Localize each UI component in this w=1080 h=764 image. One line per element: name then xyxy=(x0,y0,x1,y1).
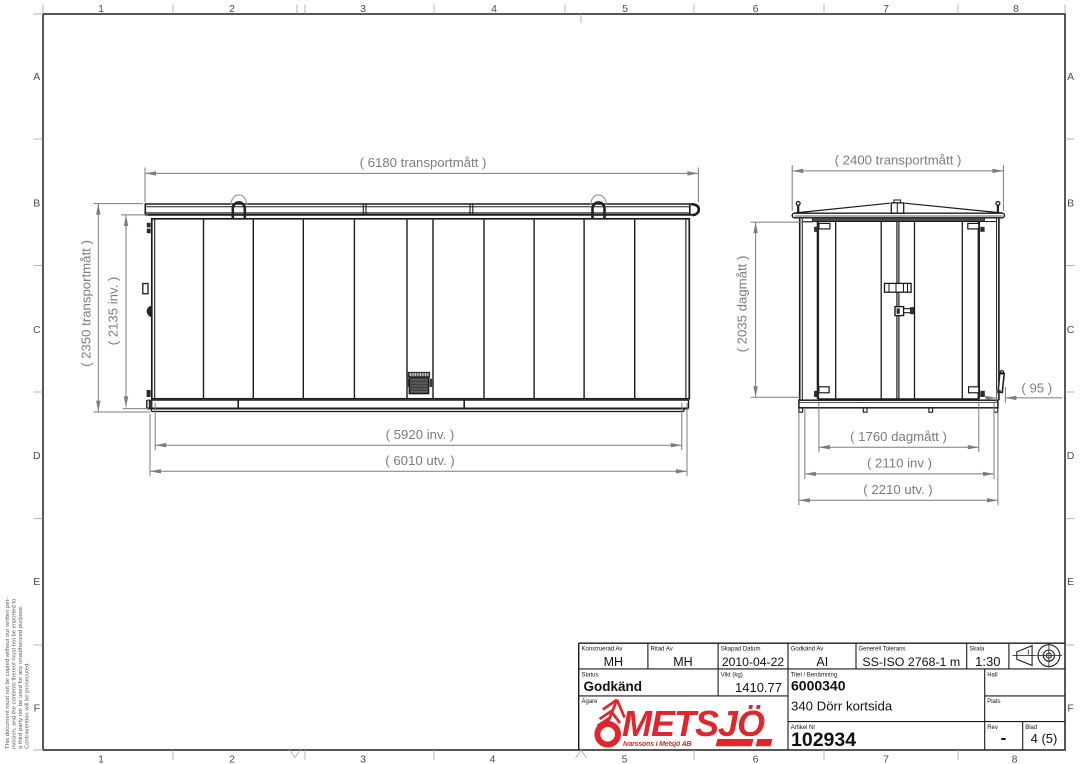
svg-text:Ivarssons i Metsjö AB: Ivarssons i Metsjö AB xyxy=(623,741,691,748)
svg-text:6: 6 xyxy=(753,3,759,15)
svg-text:This document must not be copi: This document must not be copied without… xyxy=(5,597,11,749)
svg-text:Ägare: Ägare xyxy=(582,698,599,705)
svg-text:Vikt (kg): Vikt (kg) xyxy=(721,672,743,678)
svg-text:E: E xyxy=(1067,576,1074,588)
svg-text:MH: MH xyxy=(673,655,692,669)
svg-text:METSJÖ: METSJÖ xyxy=(622,703,765,744)
svg-text:4: 4 xyxy=(491,3,497,15)
svg-text:4 (5): 4 (5) xyxy=(1031,731,1058,746)
svg-text:Generell Tolerans: Generell Tolerans xyxy=(859,647,906,653)
svg-text:6000340: 6000340 xyxy=(791,678,846,694)
svg-text:( 2400 transportmått ): ( 2400 transportmått ) xyxy=(835,153,962,168)
svg-text:Godkänd: Godkänd xyxy=(584,679,643,694)
svg-text:E: E xyxy=(33,576,40,588)
svg-text:102934: 102934 xyxy=(791,729,856,751)
svg-text:( 2350 transportmått ): ( 2350 transportmått ) xyxy=(79,240,94,367)
svg-text:( 2035 dagmått ): ( 2035 dagmått ) xyxy=(734,256,749,353)
svg-text:C: C xyxy=(33,324,41,336)
svg-text:F: F xyxy=(34,703,40,715)
svg-text:SS-ISO 2768-1 m: SS-ISO 2768-1 m xyxy=(862,655,960,669)
svg-text:B: B xyxy=(33,197,40,209)
svg-text:( 1760 dagmått ): ( 1760 dagmått ) xyxy=(850,429,947,444)
svg-text:Contravention will be prosecut: Contravention will be prosecuted. xyxy=(25,662,31,749)
svg-text:Rev: Rev xyxy=(987,725,998,731)
svg-text:8: 8 xyxy=(1012,753,1018,764)
svg-text:mission, and the contents ther: mission, and the contents thereof must n… xyxy=(12,598,18,749)
svg-text:( 2110 inv ): ( 2110 inv ) xyxy=(867,456,932,471)
svg-text:4: 4 xyxy=(490,753,496,764)
svg-text:5: 5 xyxy=(622,3,628,15)
svg-text:( 5920 inv. ): ( 5920 inv. ) xyxy=(386,427,455,442)
svg-text:B: B xyxy=(1067,197,1074,209)
svg-text:( 2135 inv. ): ( 2135 inv. ) xyxy=(106,277,121,346)
svg-text:3: 3 xyxy=(360,3,366,15)
svg-text:2: 2 xyxy=(229,3,235,15)
svg-text:2: 2 xyxy=(229,753,235,764)
svg-text:C: C xyxy=(1067,324,1075,336)
svg-text:( 6010 utv. ): ( 6010 utv. ) xyxy=(385,453,454,468)
svg-text:D: D xyxy=(1067,450,1075,462)
svg-text:Hall: Hall xyxy=(987,672,997,678)
svg-text:D: D xyxy=(33,450,41,462)
svg-text:Skala: Skala xyxy=(969,647,985,653)
svg-text:F: F xyxy=(1067,703,1073,715)
svg-text:( 2210 utv. ): ( 2210 utv. ) xyxy=(863,482,932,497)
svg-text:MH: MH xyxy=(604,655,623,669)
svg-text:Status: Status xyxy=(582,672,599,678)
svg-text:340 Dörr kortsida: 340 Dörr kortsida xyxy=(791,699,893,714)
svg-text:a third party nor be used for: a third party nor be used for any unauth… xyxy=(18,605,24,749)
svg-text:6: 6 xyxy=(753,753,759,764)
svg-text:5: 5 xyxy=(622,753,628,764)
svg-text:Godkänd Av: Godkänd Av xyxy=(791,647,824,653)
svg-text:7: 7 xyxy=(883,753,889,764)
svg-text:-: - xyxy=(1001,729,1007,748)
svg-text:( 95 ): ( 95 ) xyxy=(1021,380,1052,395)
svg-text:1: 1 xyxy=(98,753,104,764)
svg-text:7: 7 xyxy=(883,3,889,15)
svg-text:Skapad Datum: Skapad Datum xyxy=(721,647,761,653)
svg-text:( 6180 transportmått ): ( 6180 transportmått ) xyxy=(360,155,487,170)
svg-text:Plats: Plats xyxy=(987,699,1000,705)
svg-text:A: A xyxy=(1067,71,1074,83)
svg-text:2010-04-22: 2010-04-22 xyxy=(722,655,785,669)
svg-text:1410.77: 1410.77 xyxy=(735,680,782,695)
svg-text:A: A xyxy=(33,71,40,83)
svg-text:AI: AI xyxy=(816,655,828,669)
svg-text:1:30: 1:30 xyxy=(975,654,1000,669)
svg-text:8: 8 xyxy=(1013,3,1019,15)
svg-text:1: 1 xyxy=(98,3,104,15)
svg-text:Ritad Av: Ritad Av xyxy=(651,647,673,653)
svg-text:Konstruerad Av: Konstruerad Av xyxy=(582,647,623,653)
svg-text:3: 3 xyxy=(360,753,366,764)
